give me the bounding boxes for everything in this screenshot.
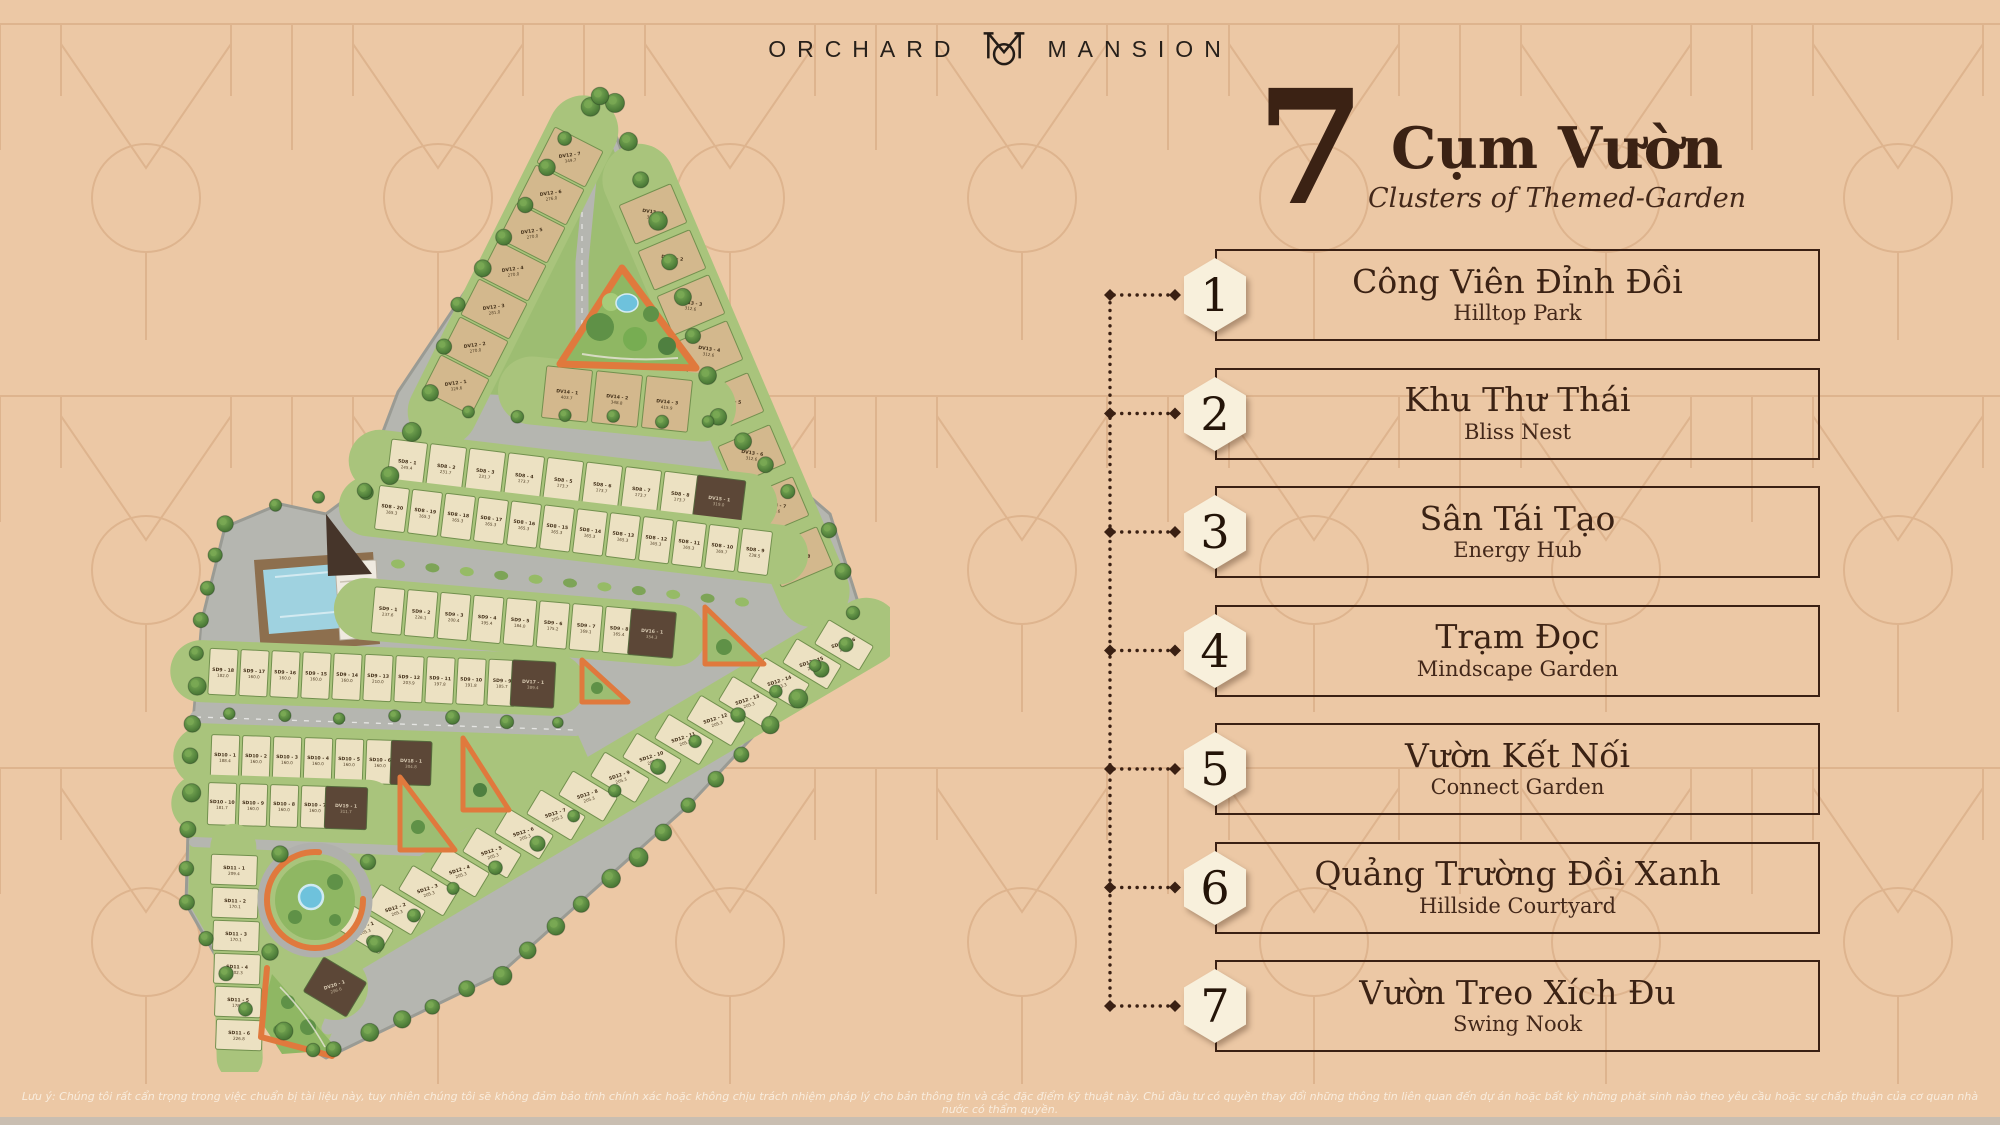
svg-text:160.0: 160.0 [247,806,259,811]
legend-item-number: 4 [1182,613,1248,689]
svg-text:160.0: 160.0 [248,674,260,680]
svg-text:210.0: 210.0 [372,679,384,685]
legend-item-title-vi: Vườn Treo Xích Đu [1359,976,1676,1011]
legend-item-title-vi: Sân Tái Tạo [1420,502,1616,537]
lot-row-SD9B: SD9 - 18182.0SD9 - 17160.0SD9 - 16160.0S… [201,648,556,708]
logo-word-right: MANSION [1047,36,1231,63]
legend-item-title-en: Hilltop Park [1453,302,1581,325]
svg-text:311.7: 311.7 [340,809,352,814]
page: ORCHARD MANSION 7 Cụm Vườn Clusters of T… [0,0,2000,1125]
svg-text:203.9: 203.9 [403,680,415,686]
hexagon-number-badge: 4 [1182,613,1248,689]
legend-item-6: Quảng Trường Đồi XanhHillside Courtyard [1215,842,1820,934]
bottom-bar [0,1117,2000,1125]
hexagon-number-badge: 3 [1182,494,1248,570]
hexagon-number-badge: 5 [1182,731,1248,807]
heading-number: 7 [1256,76,1362,221]
legend-item-4: Trạm ĐọcMindscape Garden [1215,605,1820,697]
svg-text:160.0: 160.0 [309,808,321,813]
legend-item-number: 5 [1182,731,1248,807]
logo-word-left: ORCHARD [768,36,961,63]
svg-text:160.0: 160.0 [310,676,322,682]
legend-item-title-en: Hillside Courtyard [1419,895,1616,918]
legend-item-number: 6 [1182,850,1248,926]
disclaimer-text: Lưu ý: Chúng tôi rất cẩn trọng trong việ… [10,1090,1990,1116]
legend-item-title-vi: Công Viên Đỉnh Đồi [1352,265,1683,300]
svg-text:170.1: 170.1 [229,904,241,909]
svg-text:304.8: 304.8 [405,764,417,769]
svg-text:226.8: 226.8 [233,1036,245,1041]
legend-item-title-vi: Vườn Kết Nối [1405,739,1630,774]
svg-text:188.4: 188.4 [219,758,231,763]
lot-row-SD11: SD11 - 1209.4SD11 - 2170.1SD11 - 3170.1S… [210,847,262,1058]
legend-item-title-en: Energy Hub [1453,539,1582,562]
svg-text:160.0: 160.0 [374,763,386,768]
svg-text:191.8: 191.8 [465,682,477,688]
legend-item-number: 3 [1182,494,1248,570]
legend-item-title-en: Bliss Nest [1464,421,1571,444]
heading-subtitle: Clusters of Themed-Garden [1368,183,1746,214]
legend-item-7: Vườn Treo Xích ĐuSwing Nook [1215,960,1820,1052]
heading: 7 Cụm Vườn Clusters of Themed-Garden [1256,76,1746,221]
svg-text:209.4: 209.4 [228,871,240,876]
svg-text:160.0: 160.0 [341,677,353,683]
legend-item-title-en: Swing Nook [1453,1013,1582,1036]
legend-item-number: 2 [1182,376,1248,452]
svg-text:197.8: 197.8 [434,681,446,687]
svg-text:160.0: 160.0 [281,760,293,765]
hexagon-number-badge: 7 [1182,968,1248,1044]
svg-text:226.1: 226.1 [415,614,428,620]
svg-text:181.7: 181.7 [216,805,228,810]
legend-item-title-vi: Trạm Đọc [1435,620,1599,655]
legend-item-3: Sân Tái TạoEnergy Hub [1215,486,1820,578]
svg-text:195.4: 195.4 [481,620,494,626]
svg-text:160.0: 160.0 [279,675,291,681]
legend-item-title-vi: Quảng Trường Đồi Xanh [1314,857,1720,892]
svg-text:165.4: 165.4 [613,631,626,637]
svg-text:160.0: 160.0 [312,761,324,766]
site-map: DV12 - 7349.7DV12 - 6276.0DV12 - 5270.0D… [130,62,890,1072]
legend-item-title-en: Connect Garden [1431,776,1605,799]
om-monogram-icon [981,26,1027,72]
svg-text:170.1: 170.1 [230,937,242,942]
svg-text:200.4: 200.4 [448,617,461,623]
legend-item-title-vi: Khu Thư Thái [1404,383,1630,418]
lot-row-SD10B: SD10 - 10181.7SD10 - 9160.0SD10 - 8160.0… [200,783,367,830]
lot-row-DV14: DV14 - 1403.7DV14 - 2348.8DV14 - 3415.9 [532,366,702,433]
legend-item-number: 7 [1182,968,1248,1044]
svg-text:169.1: 169.1 [580,628,593,634]
svg-text:182.0: 182.0 [217,673,229,679]
hexagon-number-badge: 6 [1182,850,1248,926]
svg-text:160.0: 160.0 [343,762,355,767]
legend-item-2: Khu Thư TháiBliss Nest [1215,368,1820,460]
legend-item-1: Công Viên Đỉnh ĐồiHilltop Park [1215,249,1820,341]
svg-text:160.0: 160.0 [278,807,290,812]
legend-item-5: Vườn Kết NốiConnect Garden [1215,723,1820,815]
hexagon-number-badge: 2 [1182,376,1248,452]
svg-text:389.4: 389.4 [527,685,539,691]
svg-text:237.6: 237.6 [382,611,395,617]
lot-row-DV20: DV20 - 1296.6 [303,957,366,1017]
legend-item-title-en: Mindscape Garden [1417,658,1619,681]
svg-text:185.7: 185.7 [496,683,508,689]
svg-text:184.0: 184.0 [514,623,527,629]
svg-text:160.0: 160.0 [250,759,262,764]
heading-title: Cụm Vườn [1391,120,1723,177]
svg-text:175.2: 175.2 [547,625,560,631]
hexagon-number-badge: 1 [1182,257,1248,333]
svg-text:354.3: 354.3 [646,634,659,640]
garden-hillside-courtyard [263,848,367,952]
legend-item-number: 1 [1182,257,1248,333]
